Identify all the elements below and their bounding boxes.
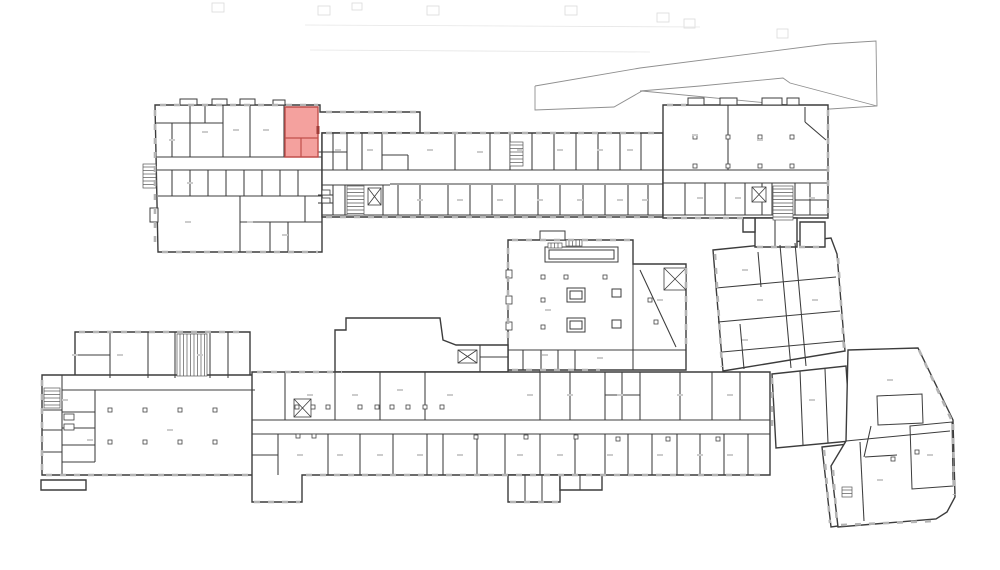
highlighted-room[interactable] [285, 107, 318, 157]
building-outlines [41, 105, 955, 527]
floor-plan-page [0, 0, 1000, 570]
faint-site-marks [212, 3, 788, 38]
faint-site-lines [305, 25, 700, 52]
floor-plan-canvas [0, 0, 1000, 570]
